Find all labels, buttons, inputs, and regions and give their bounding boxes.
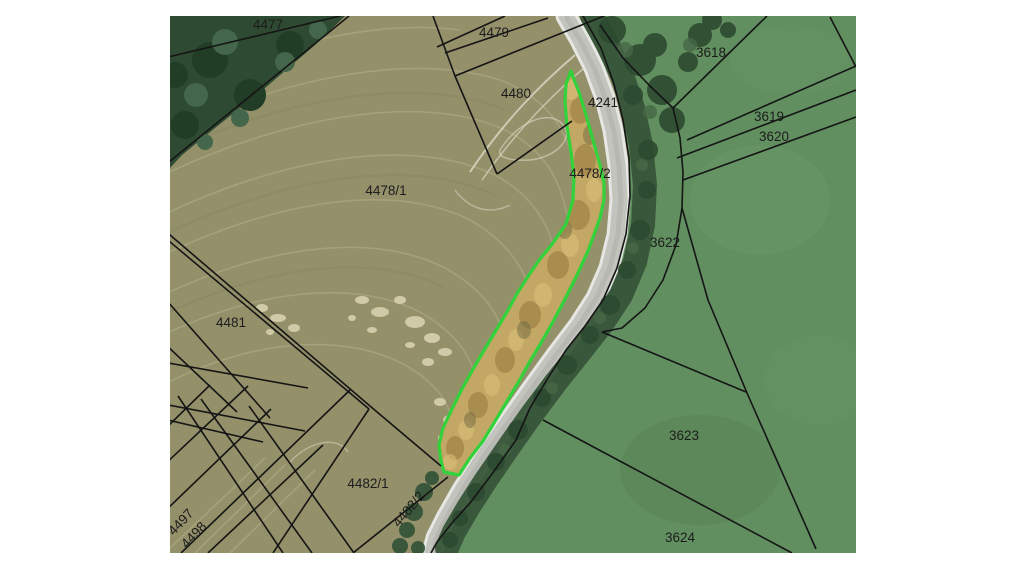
parcel-label: 4478/2 <box>569 166 610 181</box>
parcel-label: 4478/1 <box>365 183 406 198</box>
aerial-cadastral-map: 44774479448042414478/14478/2361836193620… <box>0 0 1028 570</box>
page: { "map": { "highlighted_parcel": { "numb… <box>0 0 1028 570</box>
parcel-label: 3622 <box>650 235 680 250</box>
parcel-label: 4479 <box>479 25 509 40</box>
parcel-label: 3619 <box>754 109 784 124</box>
parcel-label: 3623 <box>669 428 699 443</box>
parcel-label: 4241 <box>588 95 618 110</box>
cadastral-map-viewport[interactable]: 44774479448042414478/14478/2361836193620… <box>0 0 1028 570</box>
parcel-label: 4482/1 <box>347 476 388 491</box>
parcel-label: 4477 <box>253 17 283 32</box>
parcel-label: 3618 <box>696 45 726 60</box>
parcel-label: 3624 <box>665 530 696 545</box>
parcel-label: 4481 <box>216 315 246 330</box>
parcel-label: 3620 <box>759 129 789 144</box>
parcel-label: 4480 <box>501 86 531 101</box>
